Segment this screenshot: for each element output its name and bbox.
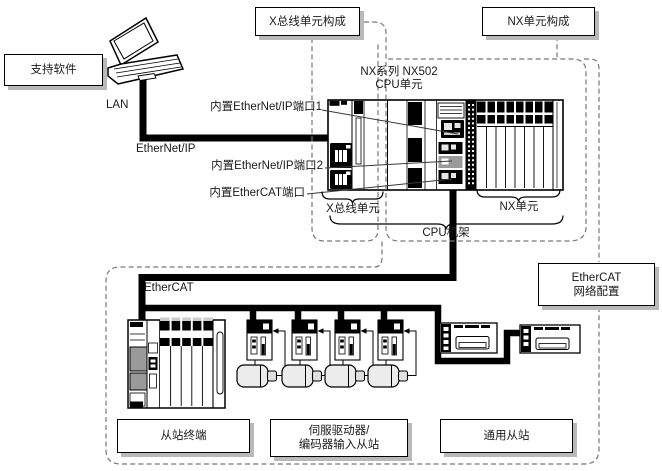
ecat-network-config-box: EtherCAT 网络配置	[538, 263, 655, 306]
ecat-port-label: 内置EtherCAT端口	[177, 187, 305, 200]
nx-config-label: NX单元构成	[508, 15, 570, 29]
eip-port1-label: 内置EtherNet/IP端口1	[190, 101, 322, 114]
cpu-rack-drawing	[328, 100, 563, 190]
xbus-units-label: X总线单元	[313, 203, 393, 216]
servo-drive-drawing	[325, 320, 373, 387]
ecat-network-config-line1: EtherCAT	[572, 271, 622, 285]
support-software-label: 支持软件	[31, 63, 77, 77]
cpu-unit-title-line2: CPU单元	[341, 79, 457, 92]
cpu-unit-title-line1: NX系列 NX502	[341, 66, 457, 79]
general-slave-drawing	[520, 325, 580, 353]
nx-config-box: NX单元构成	[482, 7, 595, 36]
laptop-icon	[108, 18, 183, 84]
servo-slave-box: 伺服驱动器/ 编码器输入从站	[270, 419, 408, 457]
servo-slave-drawings	[237, 320, 416, 387]
servo-drive-drawing	[368, 320, 416, 387]
ethernet-ip-label: EtherNet/IP	[136, 143, 195, 156]
cpu-unit-title: NX系列 NX502 CPU单元	[341, 66, 457, 92]
xbus-units-brace	[322, 192, 383, 204]
slave-terminal-label: 从站终端	[161, 429, 207, 443]
ecat-network-config-line2: 网络配置	[574, 285, 620, 299]
nx-units-brace	[477, 190, 560, 202]
network-configuration-diagram: 支持软件 X总线单元构成 NX单元构成 EtherCAT 网络配置 从站终端 伺…	[0, 0, 662, 471]
slave-terminal-drawing	[128, 318, 225, 409]
xbus-config-box: X总线单元构成	[255, 7, 360, 36]
ethercat-label: EtherCAT	[144, 282, 194, 295]
lan-label: LAN	[106, 99, 128, 112]
support-software-box: 支持软件	[4, 54, 103, 86]
general-slave-box: 通用从站	[440, 419, 573, 453]
servo-slave-line2: 编码器输入从站	[299, 438, 380, 452]
nx-units-label: NX单元	[478, 201, 560, 214]
slave-terminal-box: 从站终端	[117, 419, 250, 453]
servo-drive-drawing	[282, 320, 330, 387]
xbus-config-label: X总线单元构成	[269, 15, 346, 29]
servo-drive-drawing	[237, 320, 285, 387]
eip-port2-label: 内置EtherNet/IP端口2	[191, 160, 323, 173]
general-slave-label: 通用从站	[484, 429, 530, 443]
servo-slave-line1: 伺服驱动器/	[309, 424, 370, 438]
general-slave-drawing	[440, 323, 497, 353]
cpu-rack-label: CPU机架	[405, 227, 487, 240]
